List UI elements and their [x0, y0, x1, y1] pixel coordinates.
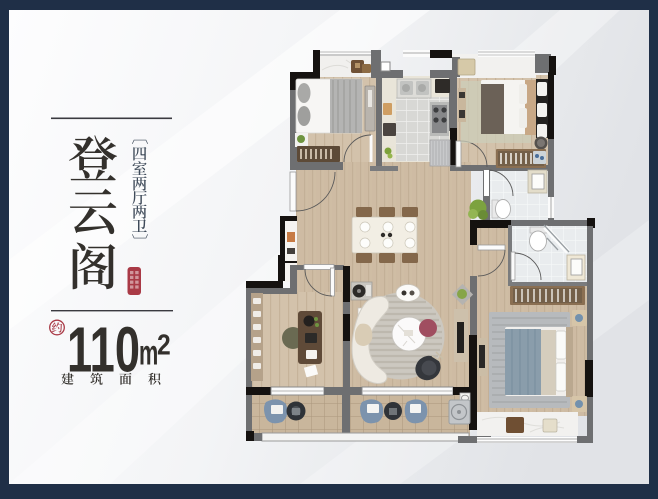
svg-text:m: m [139, 334, 158, 372]
svg-text:110: 110 [67, 314, 140, 386]
svg-text:2: 2 [157, 329, 171, 361]
